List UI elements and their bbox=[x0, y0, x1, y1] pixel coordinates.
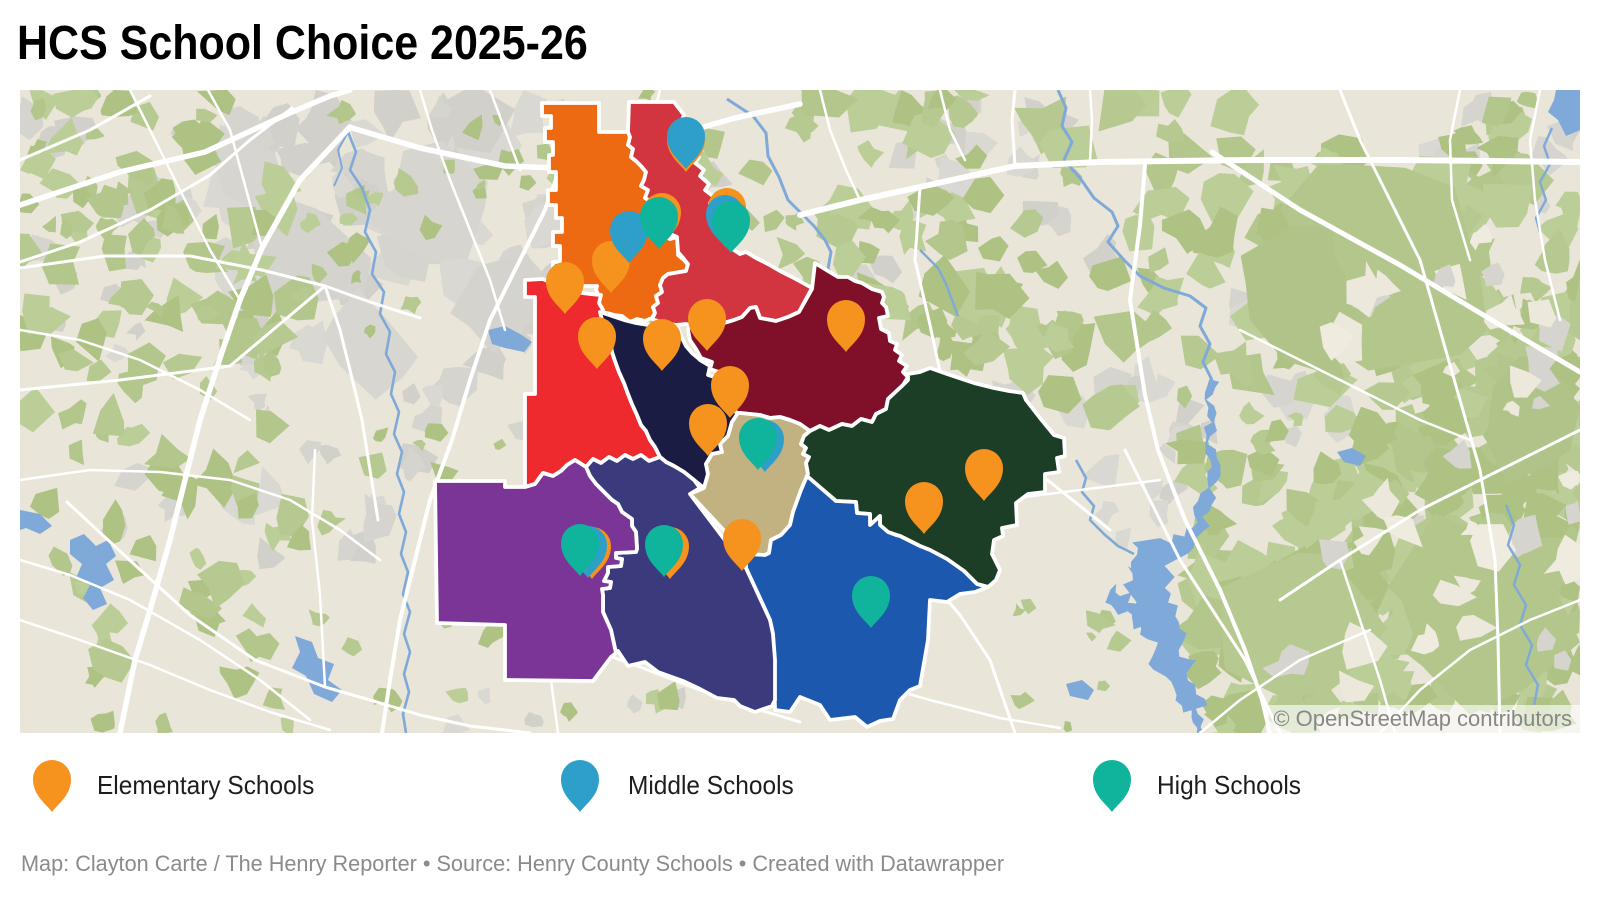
svg-text:© OpenStreetMap contributors: © OpenStreetMap contributors bbox=[1273, 706, 1572, 731]
